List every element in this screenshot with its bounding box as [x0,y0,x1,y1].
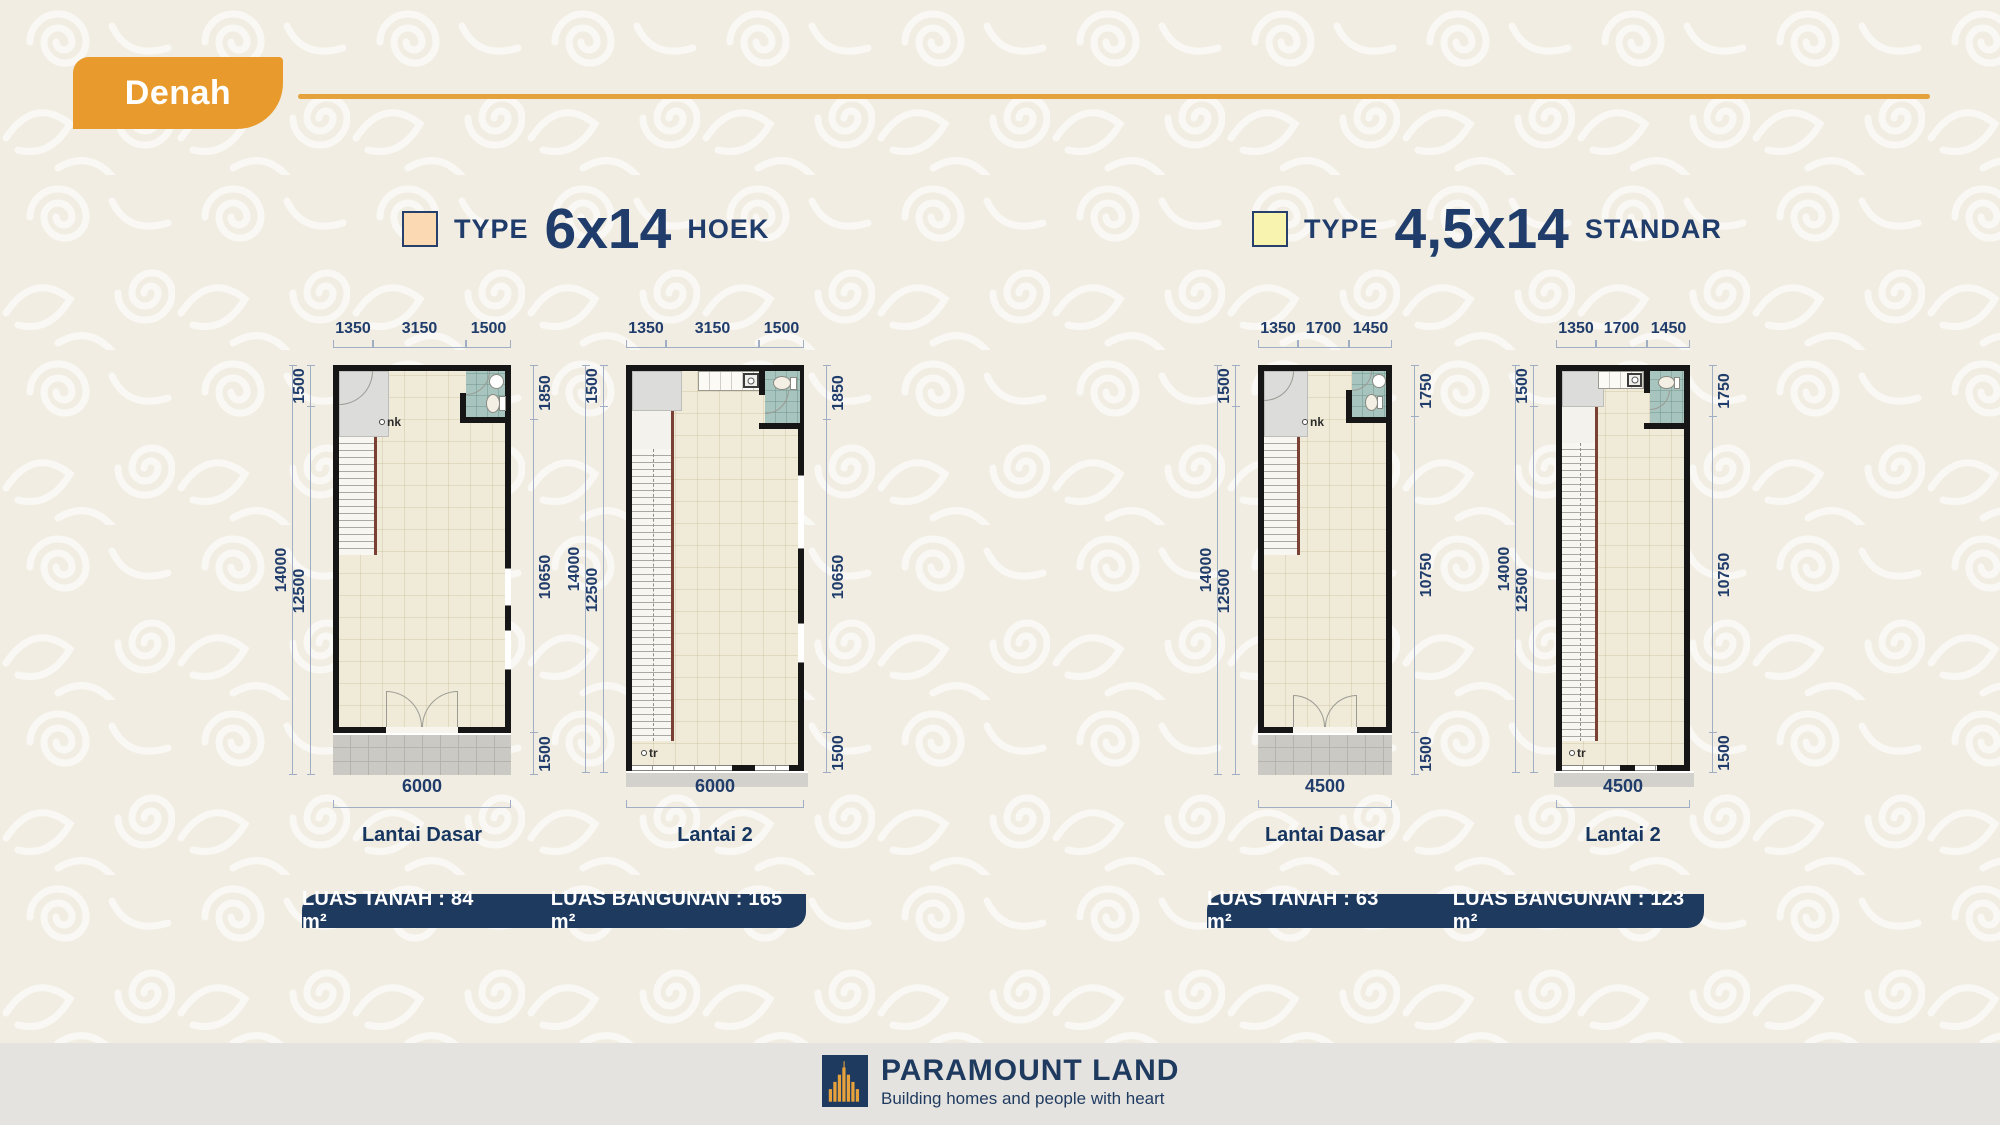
sink [1372,374,1386,388]
dim-line-left-top: 1500 [603,365,604,407]
type-header-6x14: TYPE 6x14 HOEK [402,198,769,260]
window [505,630,511,670]
type-header-45x14: TYPE 4,5x14 STANDAR [1252,198,1722,260]
dim-label: 14000 [1496,547,1514,592]
dim-line-left-top: 1500 [310,365,311,407]
dim-line-left-main: 12500 [1235,407,1236,775]
wall-segment [759,423,800,429]
wall-segment [1346,417,1386,423]
page-title: Denah [125,74,231,113]
dim-line-right-bottom: 1500 [1414,733,1415,775]
carport [1258,733,1392,775]
window [632,765,732,771]
dim-label: 10650 [830,554,848,599]
toilet-tank [1377,396,1383,409]
dim-line-right-bottom: 1500 [826,733,827,773]
dim-label: 1500 [584,368,602,404]
type-suffix: STANDAR [1585,214,1722,245]
dim-label: 1500 [537,736,555,772]
wall-segment [1644,423,1684,429]
luas-bangunan-value: LUAS BANGUNAN : 165 m² [551,888,806,934]
sink [489,374,504,389]
type-swatch-standar [1252,211,1288,247]
floorplan-6x14-lantai-2: 1350 3150 1500 14000 1500 12500 1850 106… [575,330,875,875]
floor-name-label: Lantai Dasar [333,824,511,847]
carport [333,733,511,775]
area-banner-45x14: LUAS TANAH : 63 m² LUAS BANGUNAN : 123 m… [1207,894,1704,928]
wall-segment [460,417,505,423]
luas-tanah-value: LUAS TANAH : 63 m² [1207,888,1401,934]
dim-label: 12500 [1514,568,1532,613]
stair-landing [632,371,682,411]
type-prefix: TYPE [1304,214,1379,245]
dim-label: 1750 [1418,373,1436,409]
dim-label: 10750 [1716,553,1734,598]
dim-label: 10650 [537,554,555,599]
dim-line-left-main: 12500 [1533,407,1534,773]
page-title-badge: Denah [73,57,283,129]
dim-line-right-top: 1750 [1414,365,1415,417]
floorplan-45x14-lantai-2: 1350 1700 1450 14000 1500 12500 1750 107… [1503,330,1763,875]
wall-segment [460,393,466,417]
dim-label: 12500 [584,568,602,613]
dim-line-left-main: 12500 [310,407,311,775]
type-size: 4,5x14 [1395,196,1569,262]
marker-dot-icon [1569,750,1575,756]
area-banner-6x14: LUAS TANAH : 84 m² LUAS BANGUNAN : 165 m… [302,894,806,928]
room-label-nk: nk [379,415,401,429]
type-prefix: TYPE [454,214,529,245]
stair-winder [1562,407,1598,443]
dim-line-right-bottom: 1500 [533,733,534,775]
marker-dot-icon [1302,419,1308,425]
dim-label: 6000 [334,776,510,797]
bottom-dimension-line: 6000 [626,800,804,808]
staircase [339,437,377,555]
floor-name-label: Lantai 2 [626,824,804,847]
window [1562,765,1620,771]
dim-label: 1500 [291,368,309,404]
dim-label: 1500 [1514,368,1532,404]
dim-label: 12500 [1216,569,1234,614]
dim-label: 1700 [1597,320,1646,338]
luas-bangunan-value: LUAS BANGUNAN : 123 m² [1453,888,1704,934]
dim-label: 3150 [667,320,758,338]
dim-line-right-main: 10750 [1414,417,1415,733]
bottom-dimension-line: 4500 [1556,800,1690,808]
wall-segment [1346,390,1352,417]
kitchen-sink [743,373,759,388]
room-label-tr: tr [641,746,658,760]
toilet [773,376,791,390]
door-leaf [1293,695,1294,727]
door-leaf [386,691,387,727]
dim-line-right-top: 1850 [533,365,534,420]
type-suffix: HOEK [687,214,769,245]
floor-name-label: Lantai 2 [1556,824,1690,847]
dim-label: 1850 [537,375,555,411]
dim-label: 1500 [760,320,803,338]
floor-name-label: Lantai Dasar [1258,824,1392,847]
dim-label: 12500 [291,569,309,614]
dim-label: 1350 [1259,320,1297,338]
window [505,568,511,606]
door-leaf [1356,695,1357,727]
luas-tanah-value: LUAS TANAH : 84 m² [302,888,499,934]
dim-label: 1500 [467,320,510,338]
dim-label: 1350 [1557,320,1595,338]
toilet-tank [499,396,506,411]
room-label-tr: tr [1569,746,1586,760]
dim-label: 1500 [1216,368,1234,404]
dim-label: 1350 [627,320,665,338]
slide-denah: Denah TYPE 6x14 HOEK TYPE 4,5x14 STANDAR… [0,0,2000,1125]
logo-building-icon [822,1055,868,1107]
dim-line-left-top: 1500 [1235,365,1236,407]
dim-line-right-main: 10650 [826,420,827,733]
dim-line-left-top: 1500 [1533,365,1534,407]
top-dimension-line: 1350 3150 1500 [333,340,511,348]
dim-label: 1350 [334,320,372,338]
dim-label: 3150 [374,320,465,338]
top-dimension-line: 1350 1700 1450 [1258,340,1392,348]
marker-dot-icon [379,419,385,425]
dim-label: 1500 [1418,736,1436,772]
dim-label: 1500 [830,735,848,771]
marker-dot-icon [641,750,647,756]
door-leaf [457,691,458,727]
dim-label: 1700 [1299,320,1348,338]
window [1635,765,1657,771]
stair-walkline [1580,443,1581,741]
stair-winder [632,411,674,449]
brand-name: PARAMOUNT LAND [881,1055,1179,1087]
kitchen-sink [1627,373,1642,387]
toilet [486,394,500,413]
dim-label: 1450 [1350,320,1391,338]
dim-label: 14000 [1198,548,1216,593]
dim-label: 1500 [1716,735,1734,771]
dim-line-right-main: 10750 [1712,417,1713,733]
logo-text-block: PARAMOUNT LAND Building homes and people… [881,1055,1179,1109]
dim-label: 14000 [273,548,291,593]
type-swatch-hoek [402,211,438,247]
window [798,623,804,663]
window [755,765,789,771]
room-label-nk: nk [1302,415,1324,429]
top-dimension-line: 1350 3150 1500 [626,340,804,348]
type-size: 6x14 [545,196,672,262]
window [798,475,804,549]
dim-line-right-top: 1750 [1712,365,1713,417]
dim-line-right-bottom: 1500 [1712,733,1713,773]
dim-label: 1850 [830,375,848,411]
bottom-dimension-line: 6000 [333,800,511,808]
toilet [1658,376,1675,389]
staircase [1264,437,1300,555]
dim-label: 14000 [566,547,584,592]
bottom-dimension-line: 4500 [1258,800,1392,808]
floorplan-6x14-lantai-dasar: 1350 3150 1500 14000 1500 12500 1850 106… [280,330,580,875]
entry-door-opening [1293,727,1357,733]
dim-label: 1450 [1648,320,1689,338]
dim-label: 4500 [1259,776,1391,797]
dim-line-right-main: 10650 [533,420,534,733]
toilet-tank [1674,377,1680,389]
paramount-land-logo: PARAMOUNT LAND Building homes and people… [822,1055,1179,1109]
toilet-tank [790,377,797,390]
dim-label: 1750 [1716,373,1734,409]
top-dimension-line: 1350 1700 1450 [1556,340,1690,348]
dim-line-right-top: 1850 [826,365,827,420]
dim-label: 6000 [627,776,803,797]
dim-label: 10750 [1418,553,1436,598]
dim-line-left-main: 12500 [603,407,604,773]
stair-walkline [653,449,654,741]
floorplan-45x14-lantai-dasar: 1350 1700 1450 14000 1500 12500 1750 107… [1205,330,1465,875]
entry-door-opening [386,727,458,733]
dim-label: 4500 [1557,776,1689,797]
brand-tagline: Building homes and people with heart [881,1089,1179,1109]
header-divider-line [298,94,1930,99]
